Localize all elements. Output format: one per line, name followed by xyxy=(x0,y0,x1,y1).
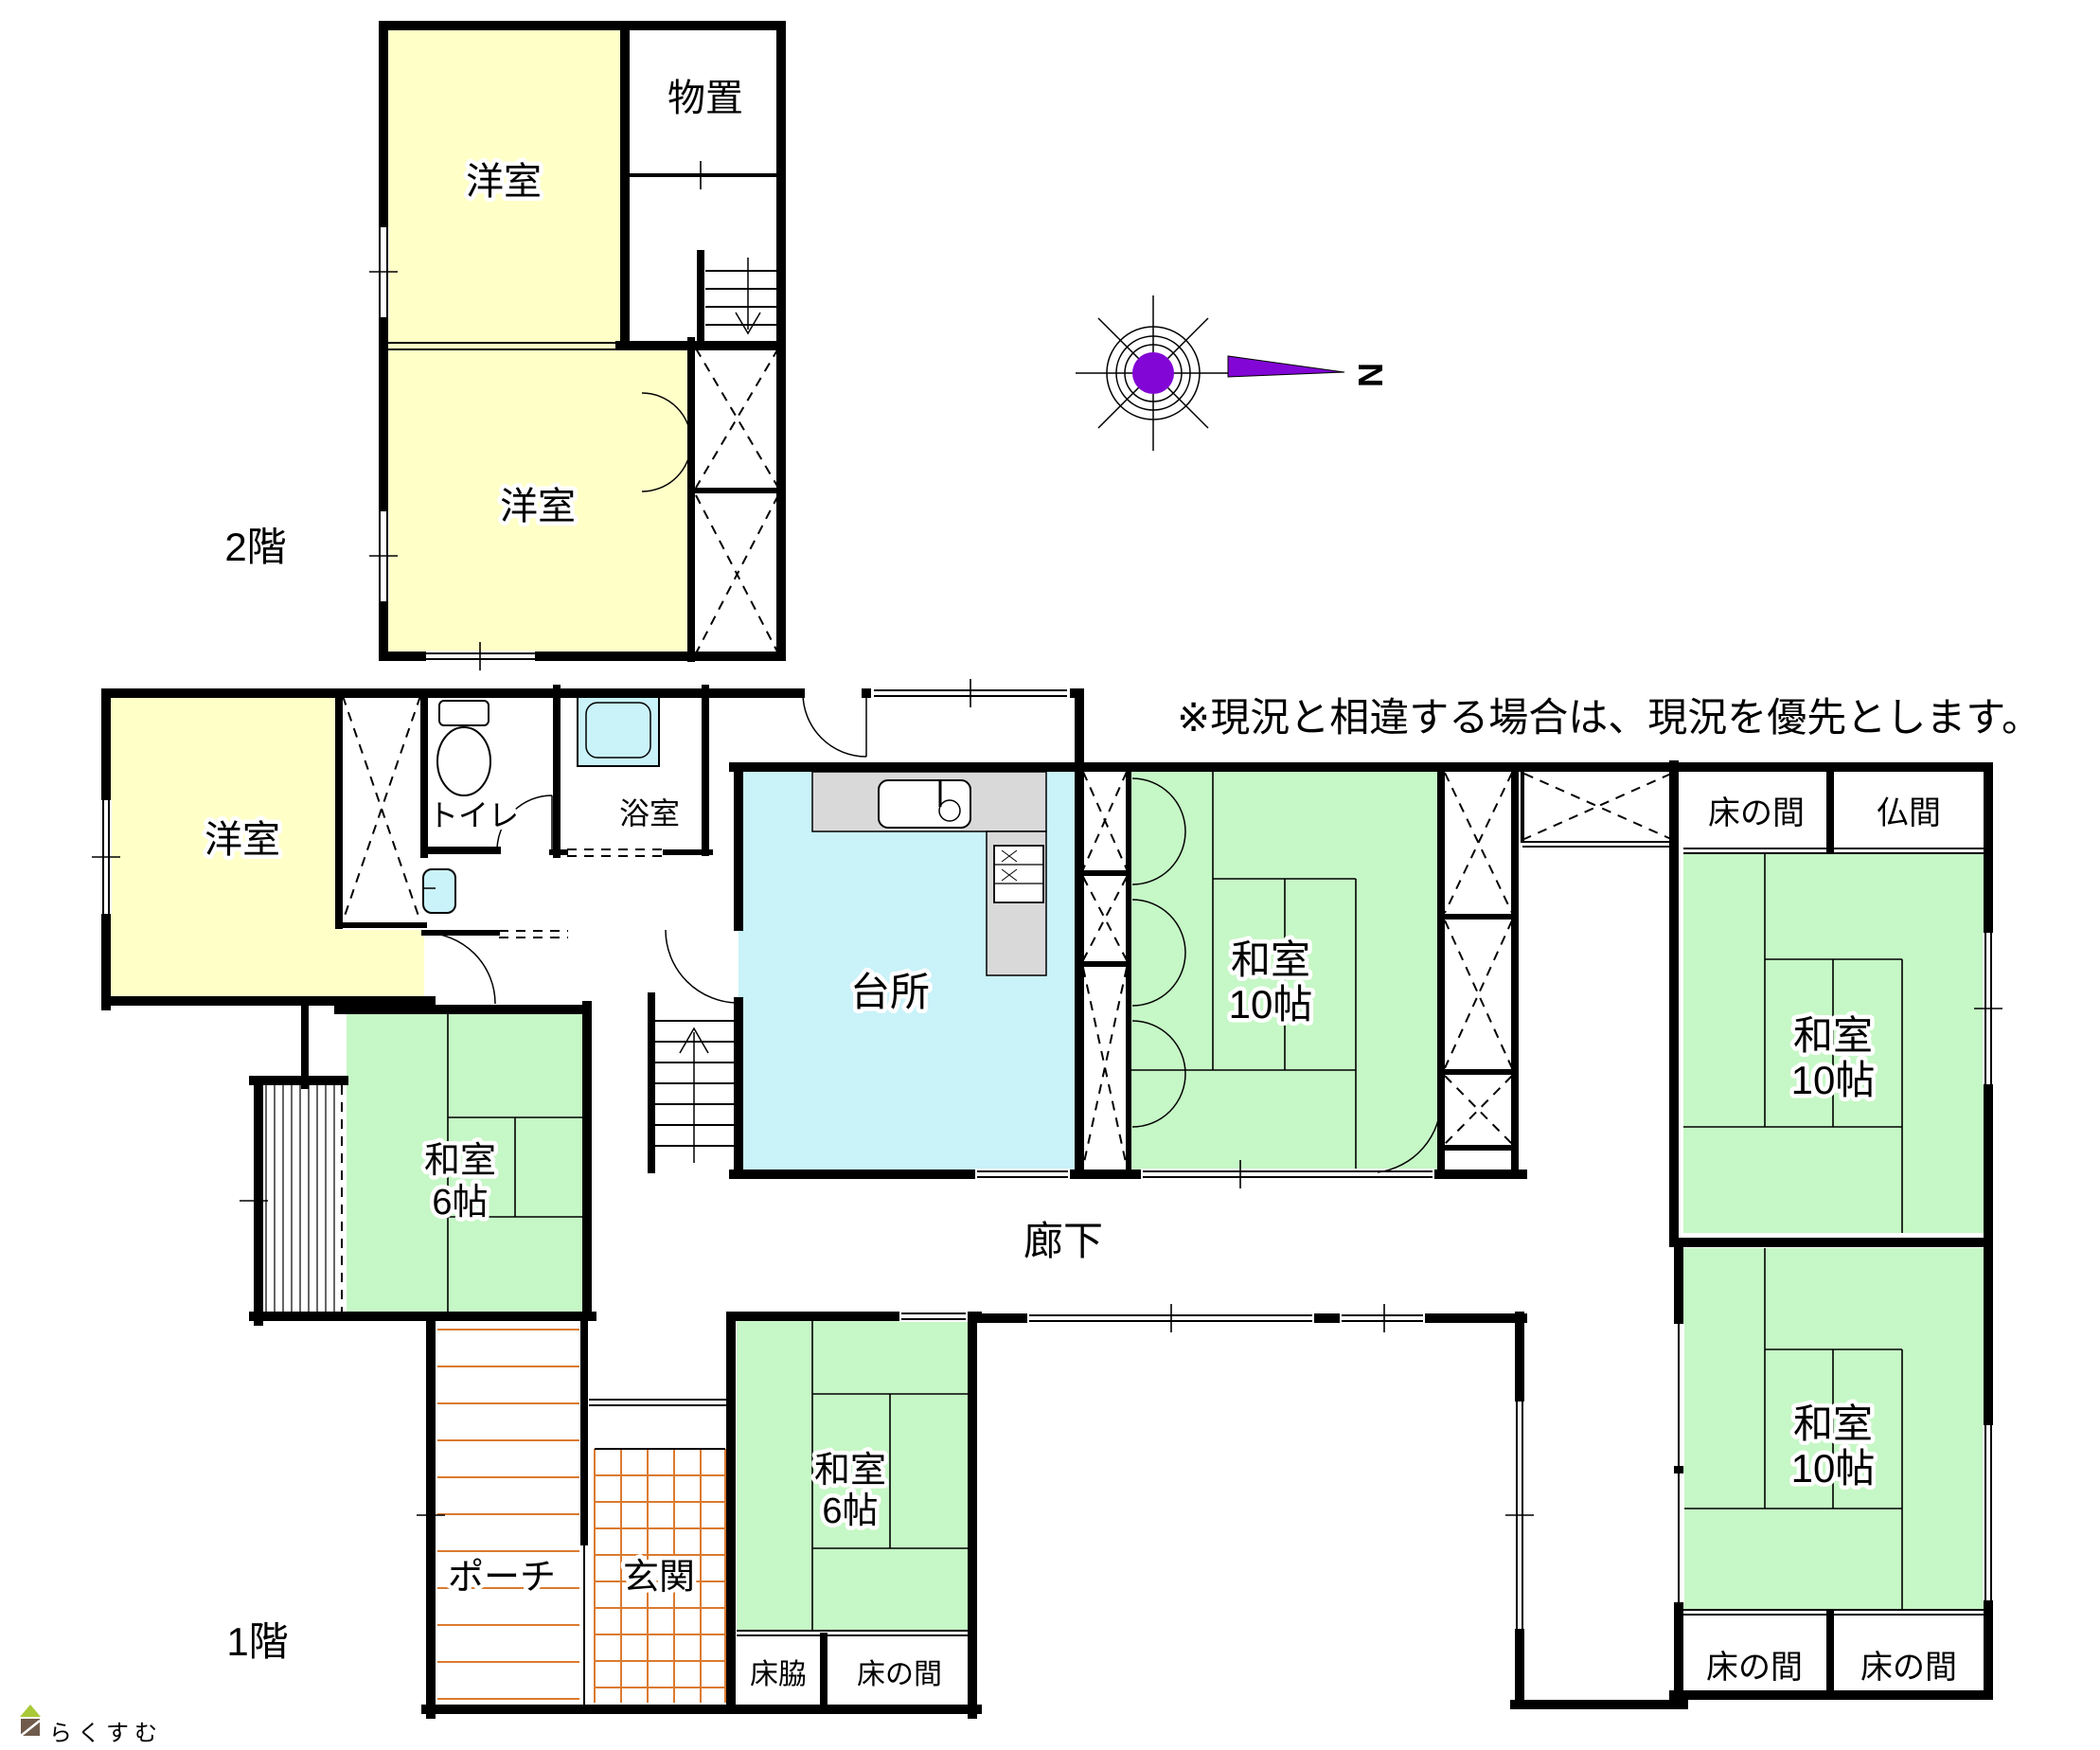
compass-center xyxy=(1132,352,1174,394)
compass-icon: N xyxy=(1076,295,1390,451)
label-butsuma: 仏間 xyxy=(1877,795,1941,831)
label-tokonoma-sw: 床の間 xyxy=(1706,1650,1803,1686)
label-kitchen: 台所 xyxy=(850,970,930,1014)
label-f1-western: 洋室 xyxy=(205,819,280,861)
label-tokowaki: 床脇 xyxy=(750,1659,807,1690)
bathtub-icon xyxy=(578,694,659,766)
label-washitsu-s-name: 和室 xyxy=(814,1451,886,1491)
label-tokonoma-ne: 床の間 xyxy=(1708,795,1805,831)
label-porch: ポーチ xyxy=(448,1558,556,1598)
label-floor2: 2階 xyxy=(224,525,286,569)
porch-step-lines xyxy=(437,1330,579,1699)
label-entrance: 玄関 xyxy=(623,1558,695,1598)
label-f2-storage: 物置 xyxy=(667,78,743,119)
stove-icon xyxy=(994,846,1043,902)
label-tokonoma-s: 床の間 xyxy=(857,1659,942,1690)
label-toilet: トイレ xyxy=(428,798,519,832)
label-washitsu-w-name: 和室 xyxy=(424,1141,496,1181)
washbasin-icon xyxy=(423,869,455,913)
label-washitsu-ne-size: 10帖 xyxy=(1791,1058,1876,1102)
annotation-note: ※現況と相違する場合は、現況を優先とします。 xyxy=(1177,695,2041,740)
floor-plan-page: N 洋室 物置 洋室 2階 洋室 トイレ 浴室 台所 和室 10帖 床の間 仏間… xyxy=(0,0,2100,1750)
label-washitsu-s-size: 6帖 xyxy=(822,1491,878,1531)
kitchen-sink-icon xyxy=(879,780,970,828)
label-bath: 浴室 xyxy=(619,796,680,830)
stairs-1f-icon xyxy=(655,1021,734,1163)
logo-house-roof-icon xyxy=(20,1705,41,1717)
label-f2-western-top: 洋室 xyxy=(466,161,542,203)
label-washitsu-w-size: 6帖 xyxy=(432,1183,488,1223)
label-washitsu-center-size: 10帖 xyxy=(1229,982,1313,1027)
north-arrow-icon xyxy=(1228,356,1344,377)
toilet-icon xyxy=(437,701,490,795)
engawa-hatch xyxy=(266,1085,342,1314)
compass-north-label: N xyxy=(1351,363,1390,387)
logo-text: らくすむ xyxy=(49,1721,163,1746)
label-washitsu-se-name: 和室 xyxy=(1793,1402,1873,1446)
label-washitsu-ne-name: 和室 xyxy=(1793,1013,1873,1058)
label-floor1: 1階 xyxy=(226,1619,288,1664)
floor-plan-svg: N 洋室 物置 洋室 2階 洋室 トイレ 浴室 台所 和室 10帖 床の間 仏間… xyxy=(0,0,2100,1750)
label-tokonoma-se: 床の間 xyxy=(1860,1650,1957,1686)
label-corridor: 廊下 xyxy=(1023,1219,1103,1263)
label-washitsu-se-size: 10帖 xyxy=(1791,1446,1876,1491)
label-f2-western-bottom: 洋室 xyxy=(500,486,576,527)
logo: らくすむ xyxy=(20,1705,163,1746)
label-washitsu-center-name: 和室 xyxy=(1231,937,1310,982)
stairs-2f-icon xyxy=(705,258,779,333)
